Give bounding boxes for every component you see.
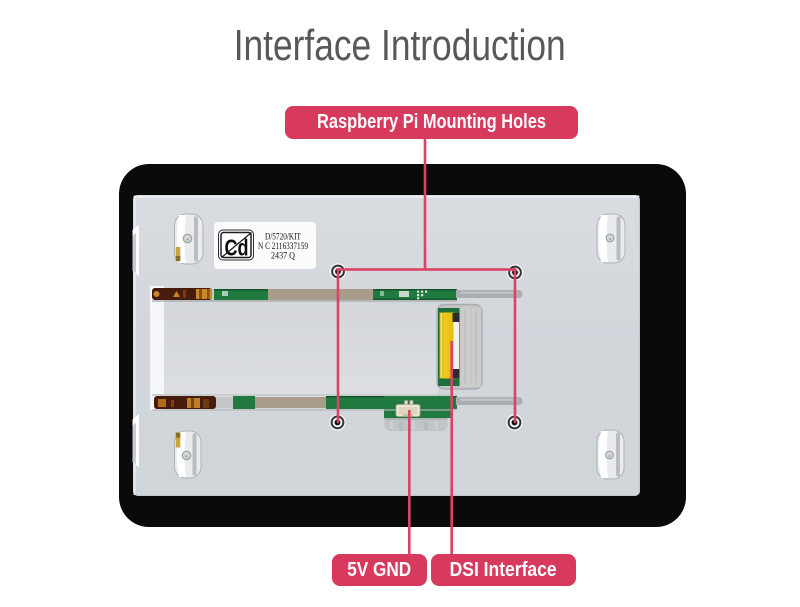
svg-text:D/5720/KIT: D/5720/KIT (265, 232, 301, 242)
svg-text:N C 2116337159: N C 2116337159 (258, 241, 308, 251)
svg-text:2437 Q: 2437 Q (271, 251, 295, 261)
